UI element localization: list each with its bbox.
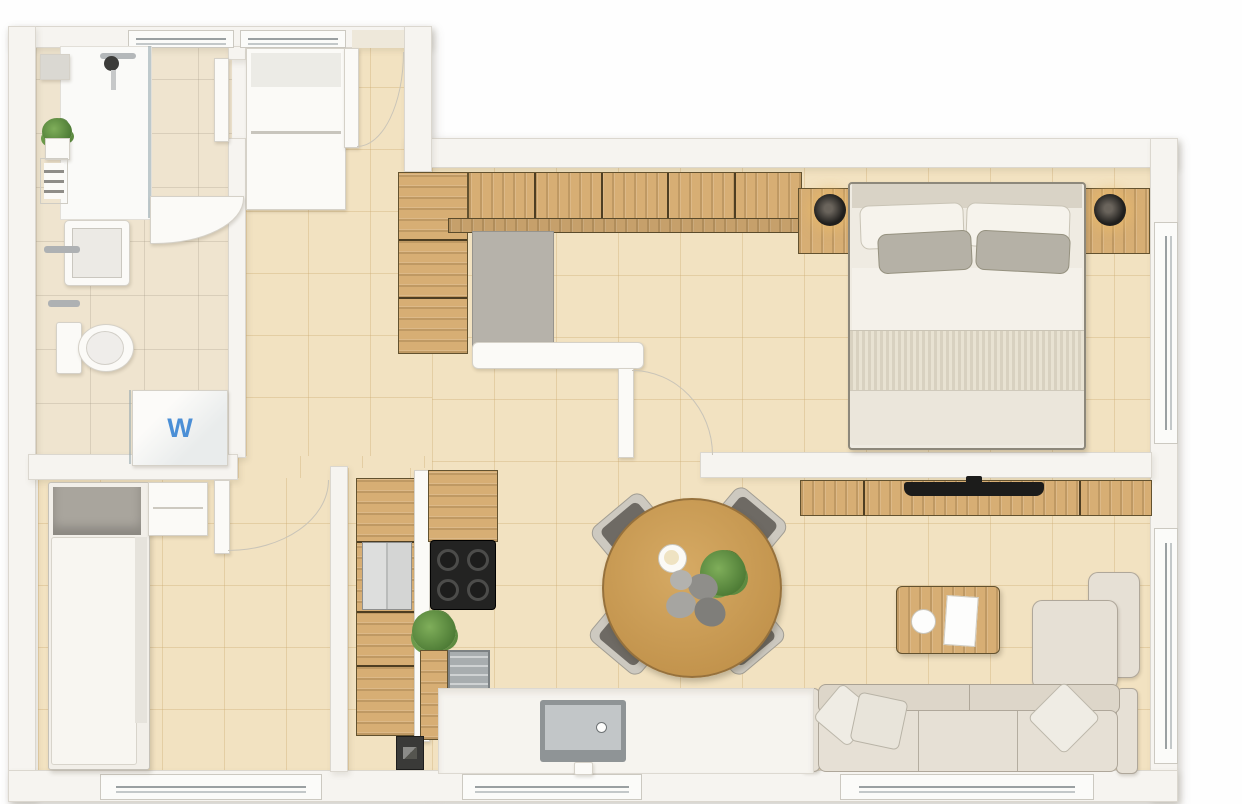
bathroom-door-leaf [214,58,229,142]
appliance-vent [403,747,417,759]
tall-wardrobe-cabinet [398,172,468,354]
shower-floor [60,46,152,220]
wardrobe-door [736,173,801,219]
table-bowl [670,570,692,590]
coffee-table-papers [943,595,978,647]
floor-plan: W [0,0,1242,804]
double-bed [848,182,1086,450]
sofa-corner-back [1032,600,1118,690]
sofa-pillow [849,691,908,750]
dining-cup [658,544,687,573]
cup-contents [664,550,679,565]
sink-faucet-icon [44,246,80,253]
small-room-nightstand [148,482,208,536]
counter-soap [574,762,593,775]
closet-shelf [251,131,341,134]
window-right-bedroom [1154,222,1178,444]
wall-smallroom-kitchen [330,466,348,772]
washer: W [132,390,228,466]
drawer-line [153,507,203,509]
towel-radiator [40,158,68,204]
bed-pillow-gray-right [975,230,1071,275]
wardrobe-door [603,173,670,219]
single-bed-rail [135,537,147,723]
cabinet-divider [357,611,415,613]
sofa-seat-cushion [919,711,1019,771]
cooktop [430,540,496,610]
burner [437,549,459,571]
console-divider [1079,481,1081,515]
wall-bedroom-living [700,452,1152,478]
counter-sink [540,700,626,762]
wall-main-top [404,138,1178,168]
coffee-table-plate [911,609,936,634]
window-bottom-smallroom [100,774,322,800]
bottom-counter [438,688,814,774]
burner [437,579,459,601]
wall-blockA-right [404,26,432,172]
wardrobe-door [669,173,736,219]
tv-stand [966,476,982,484]
counter-faucet-icon [596,722,607,733]
wall-bath-hall-top [228,46,246,60]
bath-plant-pot [45,138,70,160]
single-bed [48,482,150,770]
kitchen-upper-cabinet [428,470,498,542]
shower-head-icon [104,56,119,71]
shower-glass-panel [148,46,151,218]
bedside-lamp-right-icon [1094,194,1126,226]
kitchen-appliance [396,736,424,770]
burner [467,579,489,601]
wall-left [8,26,36,802]
sink-basin [72,228,122,278]
cabinet-divider [357,665,415,667]
kitchen-plant [412,610,456,652]
wardrobe-door [469,173,536,219]
tv [904,482,1044,496]
bed-foot-duvet [850,390,1084,445]
bath-shelf [40,54,70,80]
hall-closet [246,48,346,210]
bedside-lamp-left-icon [814,194,846,226]
bed-pillow-gray-left [877,230,973,275]
coffee-table [896,586,1000,654]
window-bottom-living [840,774,1094,800]
entry-bench [472,342,644,369]
fridge [362,542,412,610]
toilet-bowl [78,324,134,372]
window-right-living [1154,528,1178,764]
entry-threshold [352,30,404,48]
window-top-hall [240,30,346,48]
wardrobe-upper-row [468,172,802,220]
wall-bath-hall [228,138,246,458]
closet-top-section [251,53,341,87]
console-divider [863,481,865,515]
toilet-inlet-icon [48,300,80,307]
toilet-seat [86,331,124,365]
wardrobe-door [536,173,603,219]
dressing-panel [472,231,554,353]
washer-glass-screen [129,390,131,464]
single-bed-duvet [51,537,137,765]
bed-knit-blanket [850,330,1084,391]
cabinet-divider [399,239,467,241]
burner [467,549,489,571]
bed-sheet [852,268,1082,330]
washer-label: W [167,413,192,444]
sink-bowl [545,705,621,750]
cabinet-divider [399,297,467,299]
single-bed-headboard [53,487,141,535]
bathroom-sink [64,220,130,286]
shower-pipe [111,70,116,90]
window-bottom-kitchen [462,774,642,800]
